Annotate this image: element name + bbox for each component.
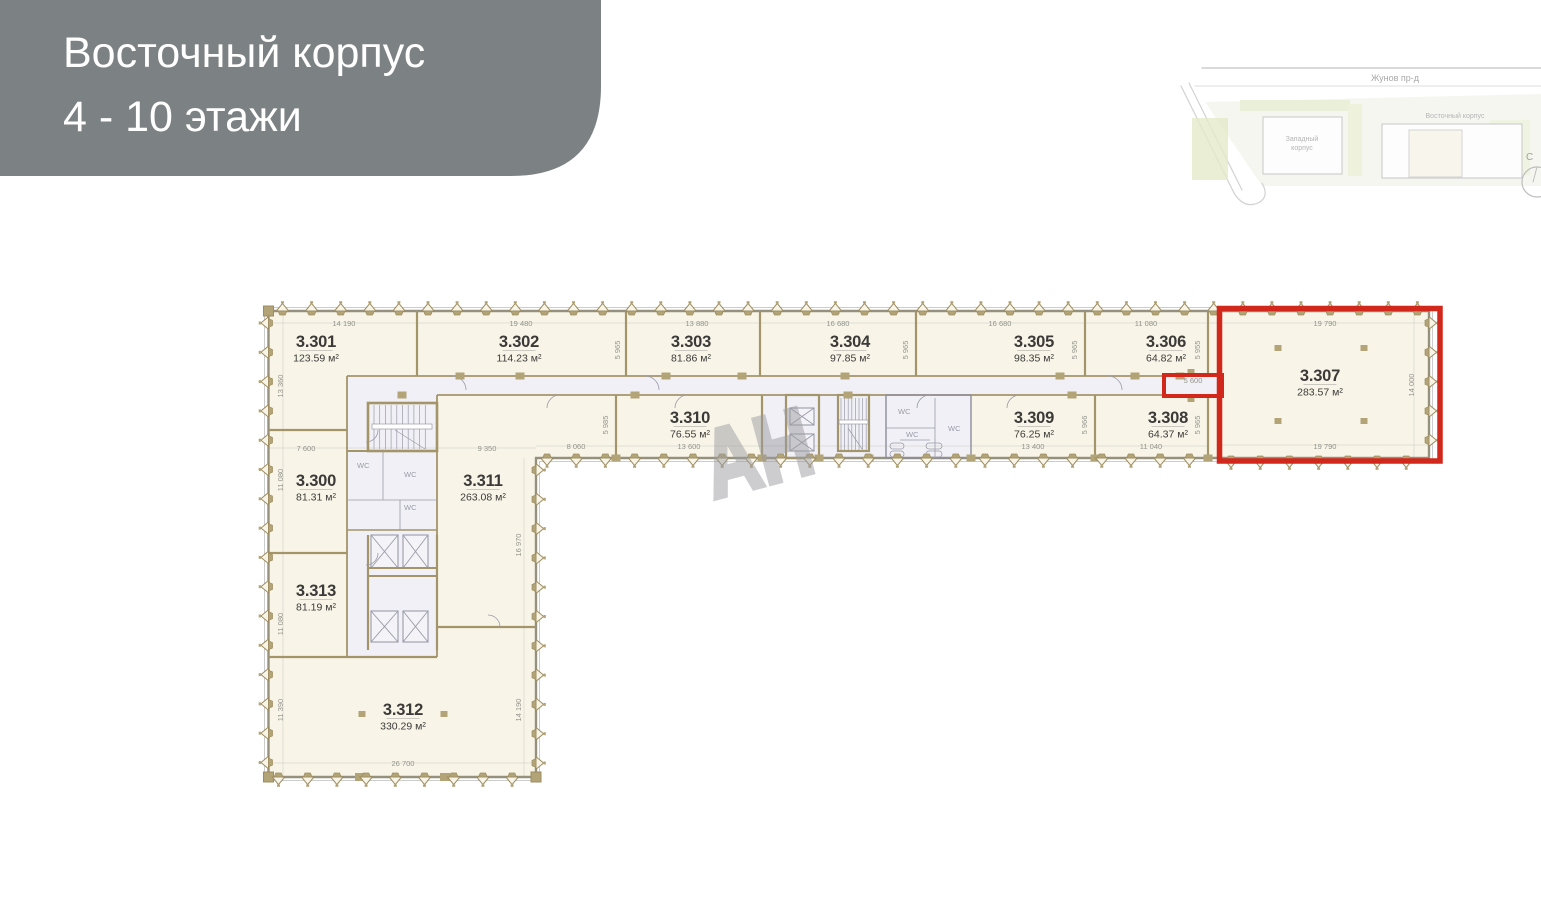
svg-text:16 970: 16 970	[514, 534, 523, 557]
svg-text:WC: WC	[404, 503, 417, 512]
svg-text:19 790: 19 790	[1314, 319, 1337, 328]
svg-text:11 080: 11 080	[276, 613, 285, 635]
svg-text:19 790: 19 790	[1314, 442, 1337, 451]
svg-text:5 965: 5 965	[1070, 341, 1079, 360]
svg-text:13 360: 13 360	[276, 375, 285, 398]
svg-text:С: С	[1526, 152, 1533, 163]
svg-text:330.29 м²: 330.29 м²	[380, 721, 426, 733]
svg-text:81.86 м²: 81.86 м²	[671, 353, 711, 365]
svg-text:5 965: 5 965	[901, 341, 910, 360]
svg-text:WC: WC	[906, 430, 919, 439]
svg-text:3.306: 3.306	[1146, 333, 1186, 351]
svg-text:3.311: 3.311	[463, 472, 502, 490]
svg-text:283.57 м²: 283.57 м²	[1297, 387, 1343, 399]
svg-text:3.307: 3.307	[1300, 367, 1340, 385]
svg-text:97.85 м²: 97.85 м²	[830, 353, 870, 365]
svg-text:5 985: 5 985	[601, 416, 610, 435]
svg-text:3.312: 3.312	[383, 701, 423, 719]
svg-text:3.305: 3.305	[1014, 333, 1054, 351]
svg-text:WC: WC	[404, 470, 417, 479]
svg-text:WC: WC	[357, 461, 370, 470]
svg-text:5 966: 5 966	[1080, 416, 1089, 435]
svg-text:11 390: 11 390	[276, 699, 285, 721]
svg-text:3.309: 3.309	[1014, 409, 1054, 427]
svg-text:7 600: 7 600	[297, 444, 316, 453]
svg-text:123.59 м²: 123.59 м²	[293, 353, 339, 365]
svg-text:5 965: 5 965	[1193, 416, 1202, 435]
svg-text:13 880: 13 880	[686, 319, 709, 328]
svg-text:5 600: 5 600	[1184, 376, 1203, 385]
svg-text:16 680: 16 680	[989, 319, 1012, 328]
svg-text:19 480: 19 480	[510, 319, 533, 328]
svg-text:11 040: 11 040	[1140, 442, 1162, 451]
svg-text:81.19 м²: 81.19 м²	[296, 602, 336, 614]
svg-text:9 350: 9 350	[478, 444, 497, 453]
svg-text:81.31 м²: 81.31 м²	[296, 492, 336, 504]
svg-text:64.37 м²: 64.37 м²	[1148, 429, 1188, 441]
svg-text:Западный: Западный	[1286, 135, 1319, 143]
svg-text:3.300: 3.300	[296, 472, 336, 490]
svg-text:114.23 м²: 114.23 м²	[497, 353, 542, 365]
svg-text:WC: WC	[948, 424, 961, 433]
svg-text:76.25 м²: 76.25 м²	[1014, 429, 1054, 441]
svg-text:Восточный корпус: Восточный корпус	[1426, 112, 1485, 120]
svg-text:98.35 м²: 98.35 м²	[1014, 353, 1054, 365]
svg-text:5 955: 5 955	[1193, 341, 1202, 360]
svg-text:3.303: 3.303	[671, 333, 711, 351]
svg-text:Восточный корпус: Восточный корпус	[63, 29, 425, 77]
svg-text:263.08 м²: 263.08 м²	[460, 492, 506, 504]
svg-text:4 - 10 этажи: 4 - 10 этажи	[63, 93, 302, 141]
svg-text:14 000: 14 000	[1407, 374, 1416, 397]
svg-text:3.302: 3.302	[499, 333, 539, 351]
svg-text:16 680: 16 680	[827, 319, 850, 328]
svg-text:5 965: 5 965	[613, 341, 622, 360]
svg-text:13 600: 13 600	[678, 442, 701, 451]
svg-text:14 190: 14 190	[333, 319, 356, 328]
svg-text:3.308: 3.308	[1148, 409, 1188, 427]
svg-text:11 080: 11 080	[1135, 319, 1157, 328]
svg-text:14 190: 14 190	[514, 699, 523, 722]
svg-text:8 060: 8 060	[567, 442, 586, 451]
svg-text:WC: WC	[898, 407, 911, 416]
svg-text:Жунов пр-д: Жунов пр-д	[1371, 73, 1420, 83]
svg-text:11 080: 11 080	[276, 469, 285, 491]
svg-text:13 400: 13 400	[1022, 442, 1045, 451]
svg-text:3.313: 3.313	[296, 582, 336, 600]
svg-text:26 700: 26 700	[392, 759, 415, 768]
svg-text:3.304: 3.304	[830, 333, 871, 351]
svg-text:корпус: корпус	[1291, 145, 1313, 152]
svg-text:3.301: 3.301	[296, 333, 336, 351]
svg-text:64.82 м²: 64.82 м²	[1146, 353, 1186, 365]
